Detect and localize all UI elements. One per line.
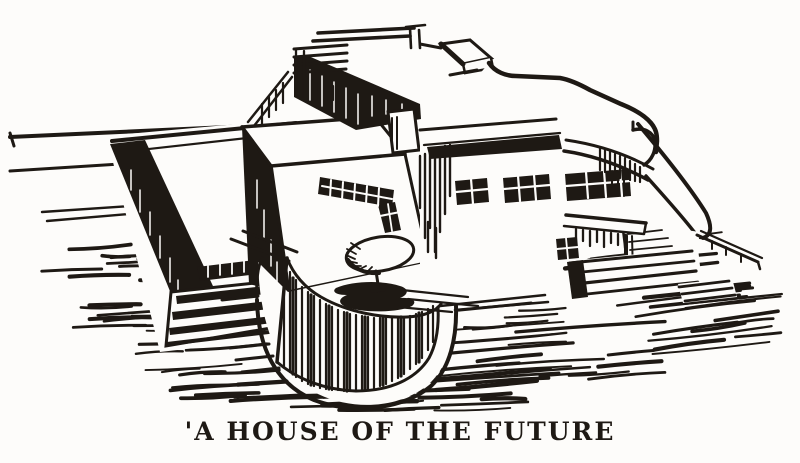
roof-chimney bbox=[388, 109, 419, 153]
path-edge-lines bbox=[42, 206, 131, 221]
rooftop-box bbox=[420, 40, 493, 75]
railing-rails bbox=[313, 28, 414, 41]
house-illustration bbox=[0, 0, 800, 412]
book-page: 'A HOUSE OF THE FUTURE bbox=[0, 0, 800, 463]
figure-caption: 'A HOUSE OF THE FUTURE bbox=[0, 417, 800, 446]
